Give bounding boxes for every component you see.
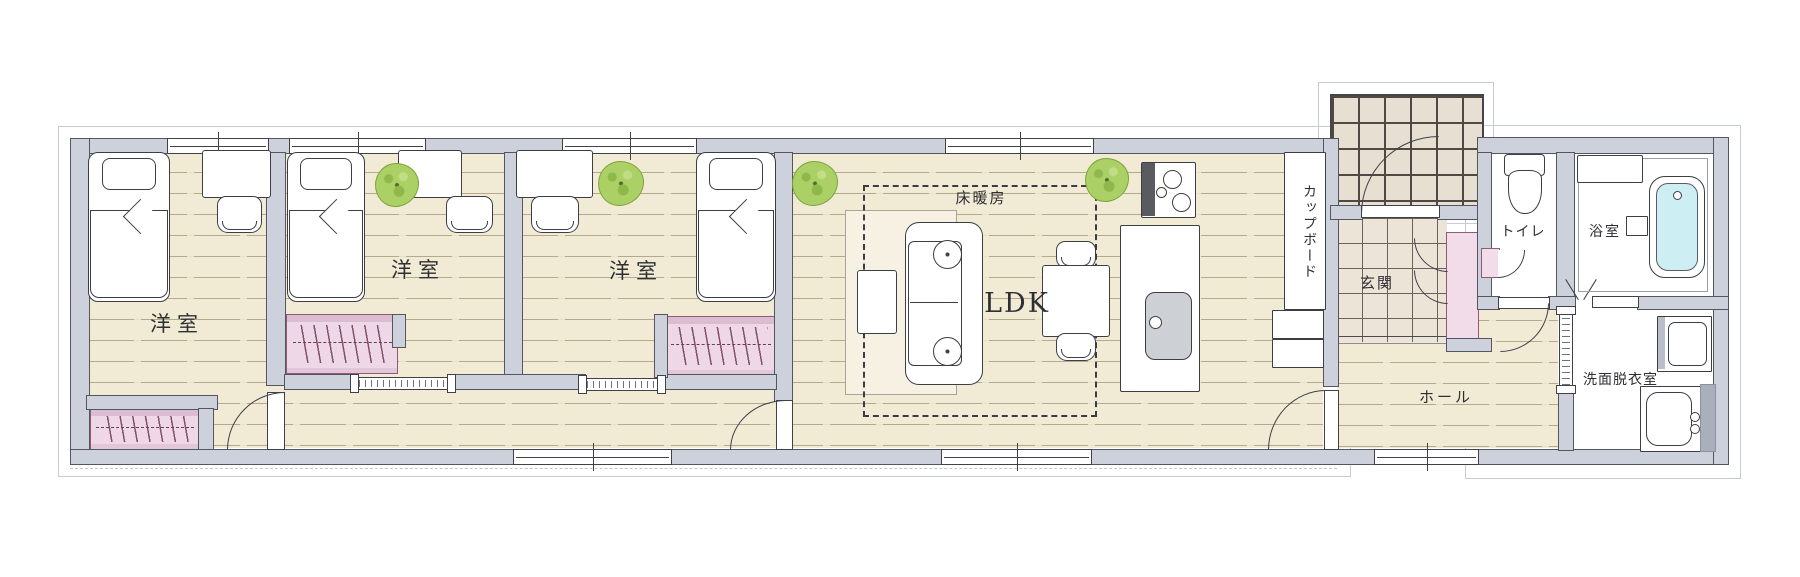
sofa-arm-circle-bottom [933,337,962,366]
bedroom2-sliding-door [356,377,450,390]
bedroom3-sliding-post-l [578,375,587,394]
washroom-sliding-post-t [1556,306,1576,315]
window-ldk-top [945,138,1094,154]
bed-1-pillow [102,158,156,190]
chair-1 [217,196,262,233]
outer-wall-left [70,138,90,465]
window-ldk-bottom [941,449,1092,465]
sanitary-wall-top [1477,137,1729,154]
window-hall-bottom [1374,449,1479,465]
closet-bedroom-2 [286,314,398,374]
bedroom2-sliding-post-l [350,374,359,393]
side-table [857,270,897,334]
bed-3-pillow [709,158,763,190]
ldk-hall-door-leaf [1324,390,1339,450]
bedroom2-sliding-post-r [447,374,456,393]
sofa-cushion-divider [910,302,958,303]
washroom-label: 洗面脱衣室 [1578,369,1663,389]
bedroom-1-label: 洋室 [117,308,237,338]
closet-bedroom-3 [664,316,778,376]
ldk-label: LDK [957,288,1077,319]
kitchen-faucet [1149,316,1162,329]
bathtub-drain [1673,191,1682,200]
bedroom3-sliding-post-r [657,375,666,394]
entrance-step-line [1337,336,1447,344]
closet-bedroom-1 [90,408,200,450]
porch-wall-left [1330,205,1363,220]
washing-machine-edge [1658,317,1665,369]
corridor-wall-seg3 [658,374,777,390]
bath-door-bar [1592,296,1639,308]
chair-3 [531,196,579,233]
shoe-closet [1446,232,1479,340]
porch-wall-right [1437,205,1482,220]
floor-plan: 洋室 洋室 洋室 LDK 床暖房 カップボード 玄関 ホール トイレ 浴室 洗面… [0,0,1800,577]
bedroom-3-label: 洋室 [576,255,696,285]
refrigerator-top [1272,310,1324,339]
closet2-wall-stub [392,314,406,348]
closet1-wall-stub [198,408,214,450]
toilet-bowl [1508,170,1542,214]
shoe-closet-wall-below [1446,338,1492,352]
hall-label: ホール [1396,386,1496,407]
entrance-label: 玄関 [1337,272,1417,293]
bedroom3-sliding-door [584,378,660,391]
bedroom-2-label: 洋室 [358,254,478,284]
sofa-arm-circle-top [933,240,962,269]
mid-wall-seg1 [1477,296,1500,310]
washroom-pillar [1700,384,1716,452]
stove-burner-3 [1156,187,1167,198]
toilet-label: トイレ [1483,221,1563,241]
washroom-wall-left [1558,386,1574,451]
stove-burner-1 [1163,170,1182,189]
stove-edge [1142,163,1155,216]
washroom-sliding-door [1559,309,1573,388]
corridor-wall-seg1 [284,374,358,390]
window-corridor-bottom [513,449,672,465]
vanity-bowl [1646,392,1692,446]
washroom-sliding-post-b [1556,385,1576,394]
bath-bench [1577,155,1643,183]
vanity-faucet-2 [1690,424,1700,434]
stove-burner-2 [1172,193,1191,212]
bathroom-label: 浴室 [1565,221,1645,241]
floor-heating-label: 床暖房 [921,187,1041,208]
dining-chair-south [1056,333,1096,361]
desk-3 [516,150,593,198]
vanity-faucet-1 [1690,412,1700,422]
desk-1 [202,150,271,198]
mid-wall-seg3 [1637,296,1729,310]
partition-bedroom3-ldk [774,152,793,402]
chair-2 [446,196,493,233]
cupboard-label: カップボード [1289,162,1319,302]
corridor-wall-seg2 [448,374,586,390]
terrace-line [70,468,1337,469]
refrigerator-bottom [1272,339,1324,368]
outer-wall-bottom [70,449,1729,465]
bed-2-pillow [300,158,352,190]
washing-machine-drum [1668,322,1707,366]
closet3-wall-stub [654,314,668,378]
